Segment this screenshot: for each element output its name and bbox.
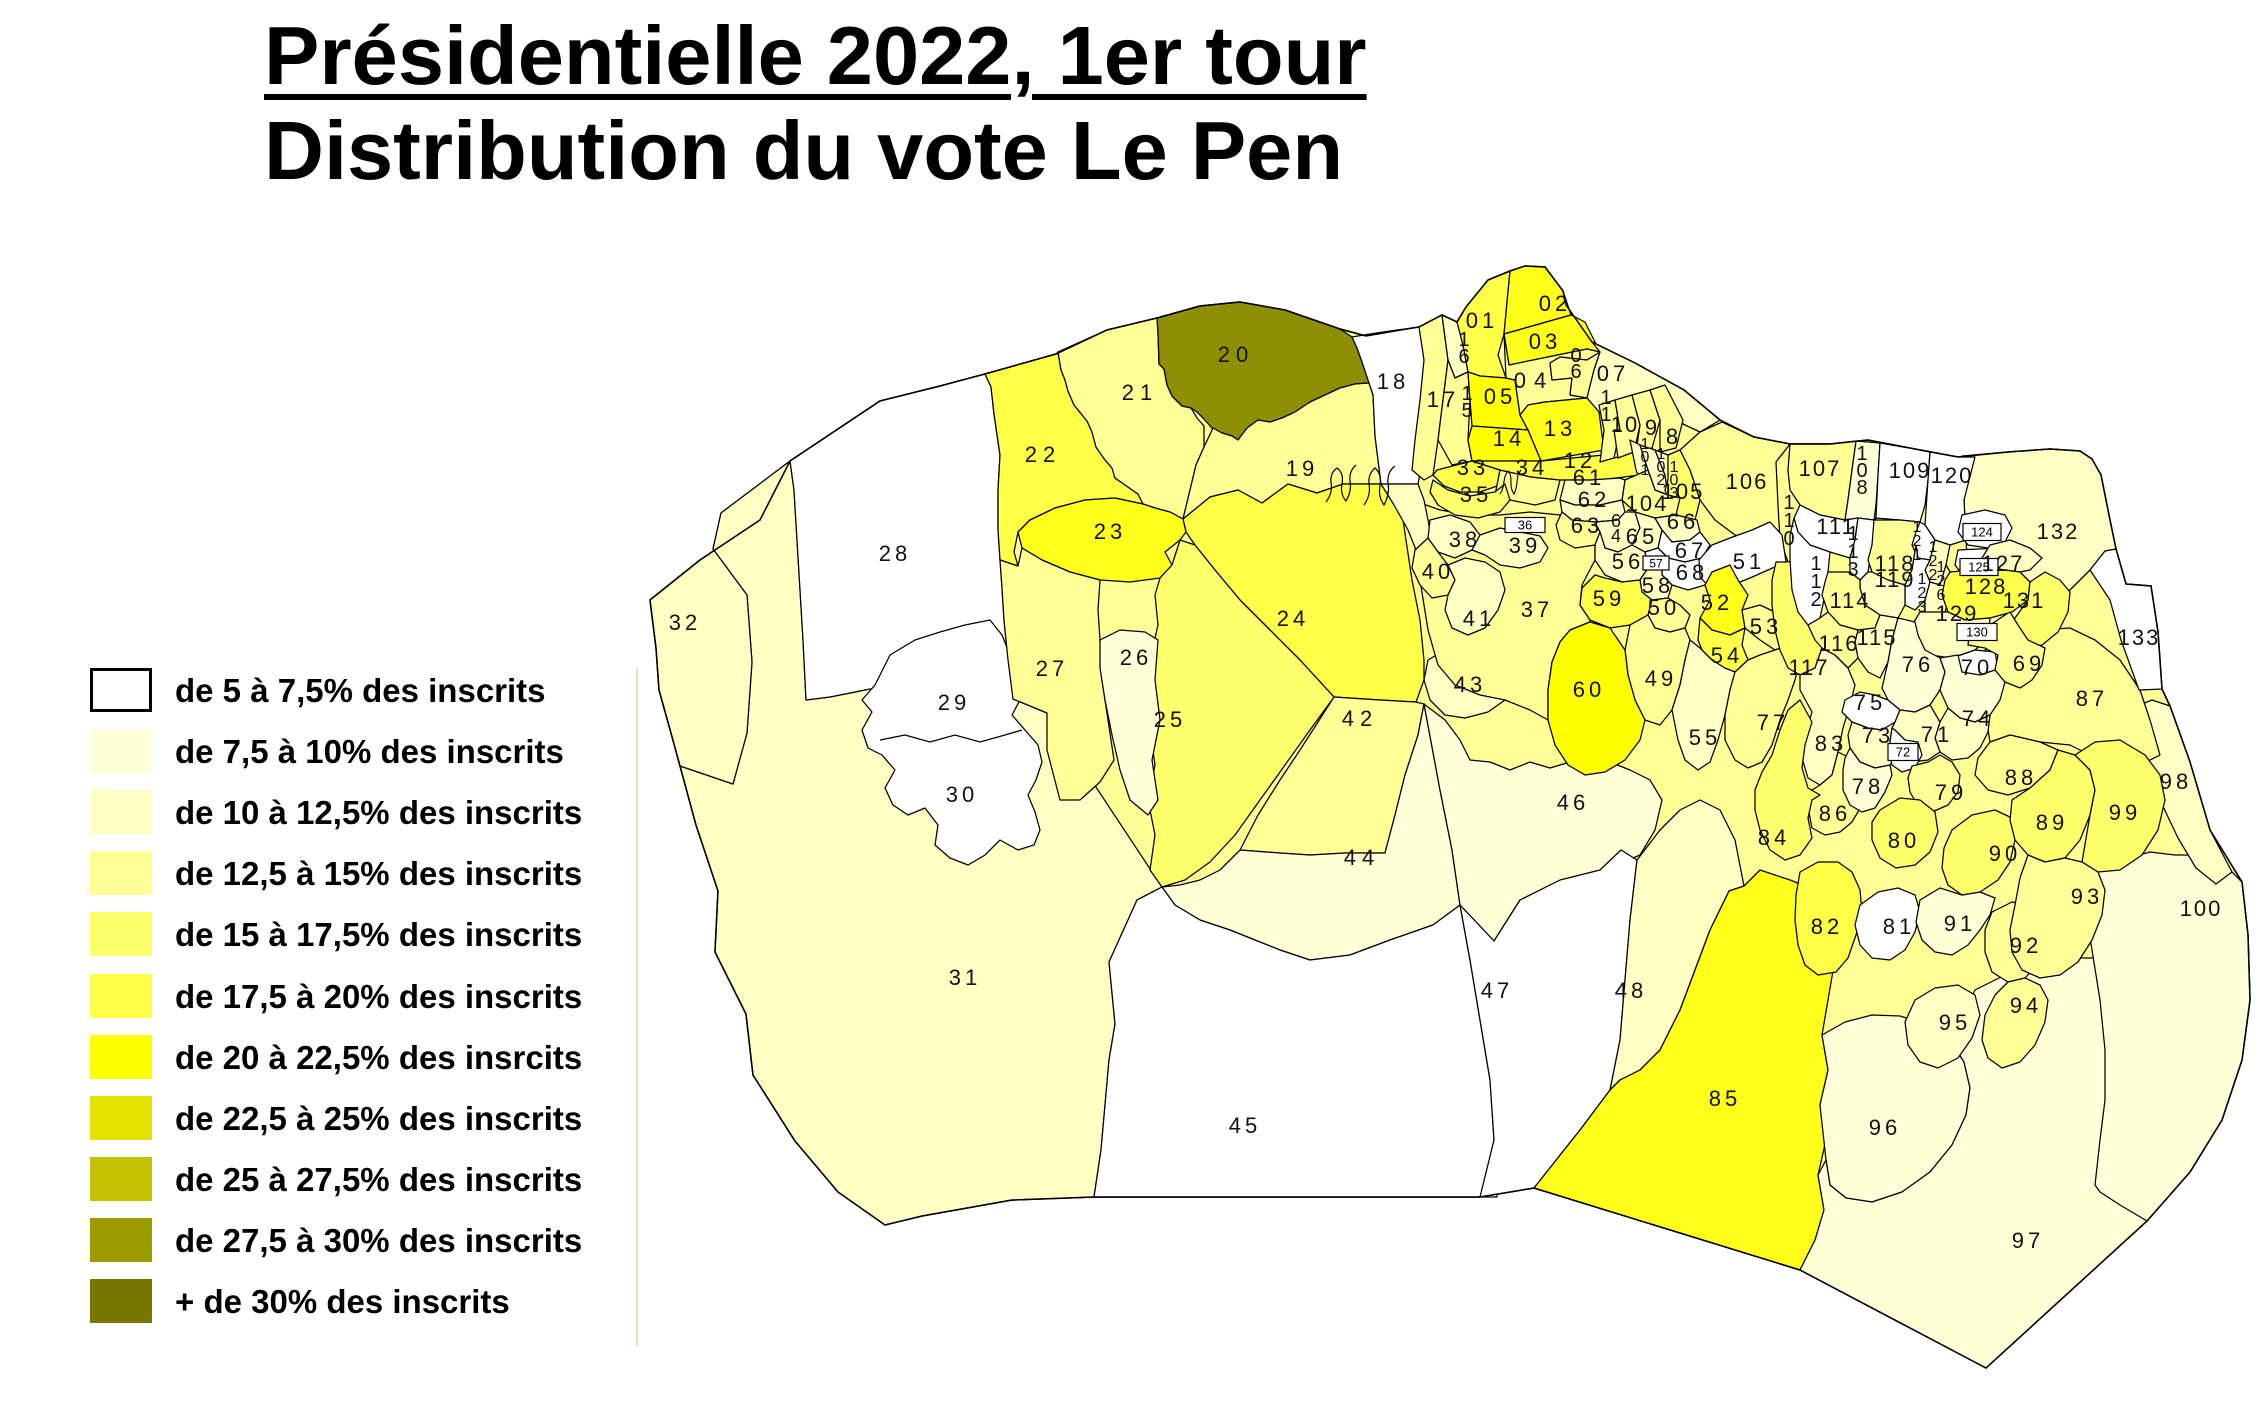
svg-text:83: 83 [1815,731,1847,756]
svg-text:70: 70 [1961,655,1993,680]
svg-text:53: 53 [1750,614,1782,639]
svg-text:88: 88 [2005,765,2037,790]
svg-text:98: 98 [2160,769,2192,794]
svg-text:04: 04 [1514,368,1554,393]
svg-text:35: 35 [1460,482,1492,507]
svg-text:86: 86 [1819,801,1851,826]
svg-text:06: 06 [1570,345,1581,383]
svg-text:119: 119 [1874,567,1915,592]
svg-text:60: 60 [1573,677,1605,702]
svg-text:40: 40 [1422,559,1454,584]
svg-text:23: 23 [1094,519,1126,544]
svg-text:41: 41 [1463,606,1495,631]
svg-text:07: 07 [1597,361,1629,386]
svg-text:121: 121 [1913,519,1922,564]
svg-text:45: 45 [1229,1113,1261,1138]
svg-text:18: 18 [1377,369,1409,394]
svg-text:19: 19 [1286,456,1318,481]
svg-text:38: 38 [1449,527,1481,552]
svg-text:124: 124 [1971,525,1993,540]
svg-text:39: 39 [1509,533,1541,558]
svg-text:46: 46 [1557,790,1589,815]
svg-text:01: 01 [1466,308,1498,333]
svg-text:58: 58 [1642,573,1674,598]
svg-text:113: 113 [1847,523,1858,581]
svg-text:26: 26 [1120,645,1152,670]
svg-text:52: 52 [1701,590,1733,615]
svg-text:51: 51 [1733,549,1765,574]
svg-text:79: 79 [1935,780,1967,805]
svg-text:85: 85 [1709,1086,1741,1111]
svg-text:57: 57 [1649,556,1663,570]
svg-text:71: 71 [1921,722,1953,747]
svg-text:99: 99 [2109,800,2141,825]
svg-text:64: 64 [1611,511,1621,546]
svg-text:109: 109 [1889,458,1932,483]
svg-text:14: 14 [1493,426,1525,451]
svg-text:89: 89 [2036,810,2068,835]
svg-text:05: 05 [1484,384,1516,409]
svg-text:131: 131 [2003,588,2046,613]
svg-text:78: 78 [1852,774,1884,799]
svg-text:44: 44 [1344,845,1380,870]
svg-text:115: 115 [1856,625,1897,650]
svg-text:37: 37 [1521,597,1553,622]
svg-text:47: 47 [1481,978,1513,1003]
svg-text:13: 13 [1544,416,1576,441]
svg-text:33: 33 [1457,455,1489,480]
svg-text:82: 82 [1811,914,1843,939]
svg-text:11: 11 [1600,387,1611,426]
svg-text:59: 59 [1593,586,1625,611]
svg-text:96: 96 [1869,1115,1901,1140]
svg-text:56: 56 [1612,549,1644,574]
svg-text:74: 74 [1962,706,1994,731]
svg-text:94: 94 [2010,993,2042,1018]
svg-text:116: 116 [1818,631,1859,656]
svg-text:91: 91 [1944,911,1976,936]
svg-text:63: 63 [1571,513,1603,538]
svg-text:36: 36 [1518,518,1532,533]
svg-text:123: 123 [1918,571,1927,616]
svg-text:76: 76 [1902,652,1934,677]
svg-text:130: 130 [1966,625,1988,640]
svg-text:43: 43 [1454,672,1486,697]
svg-text:21: 21 [1122,380,1158,405]
svg-text:114: 114 [1829,588,1870,613]
svg-text:103: 103 [1670,459,1679,502]
svg-text:105: 105 [1662,479,1705,504]
svg-text:72: 72 [1896,745,1910,760]
svg-text:102: 102 [1657,446,1666,489]
svg-text:133: 133 [2118,625,2161,650]
svg-text:32: 32 [669,610,701,635]
svg-text:50: 50 [1648,595,1680,620]
svg-text:87: 87 [2076,686,2108,711]
svg-text:27: 27 [1036,656,1068,681]
svg-text:42: 42 [1342,706,1378,731]
svg-text:100: 100 [2180,896,2223,921]
svg-text:62: 62 [1578,487,1610,512]
svg-text:108: 108 [1856,443,1867,499]
svg-text:16: 16 [1458,329,1469,368]
svg-text:69: 69 [2013,651,2045,676]
svg-text:8: 8 [1666,424,1680,449]
svg-text:129: 129 [1936,601,1979,626]
svg-text:65: 65 [1626,524,1658,549]
svg-text:12: 12 [1564,448,1596,473]
svg-text:132: 132 [2037,519,2080,544]
svg-text:73: 73 [1862,723,1894,748]
svg-text:10: 10 [1611,412,1639,437]
svg-text:55: 55 [1689,725,1721,750]
svg-text:28: 28 [879,541,911,566]
svg-text:15: 15 [1461,383,1472,422]
svg-text:128: 128 [1965,574,2008,599]
svg-text:66: 66 [1667,509,1699,534]
svg-text:112: 112 [1810,553,1821,611]
svg-text:03: 03 [1529,329,1561,354]
svg-text:80: 80 [1888,828,1920,853]
svg-text:93: 93 [2071,884,2103,909]
svg-text:106: 106 [1726,469,1769,494]
svg-text:117: 117 [1788,655,1829,680]
svg-text:02: 02 [1539,291,1571,316]
svg-text:97: 97 [2012,1228,2044,1253]
svg-text:17: 17 [1427,387,1459,412]
svg-text:127: 127 [1982,551,2025,576]
svg-text:107: 107 [1799,456,1842,481]
svg-text:20: 20 [1218,342,1254,367]
svg-text:81: 81 [1883,914,1915,939]
svg-text:22: 22 [1025,442,1061,467]
svg-text:75: 75 [1854,690,1886,715]
svg-text:48: 48 [1615,978,1647,1003]
svg-text:126: 126 [1937,559,1946,604]
svg-text:25: 25 [1154,707,1186,732]
svg-text:95: 95 [1939,1010,1971,1035]
svg-text:49: 49 [1645,666,1677,691]
svg-text:110: 110 [1783,492,1794,550]
svg-text:54: 54 [1711,643,1743,668]
svg-text:34: 34 [1516,455,1548,480]
svg-text:92: 92 [2010,933,2042,958]
svg-text:24: 24 [1277,606,1309,631]
svg-text:84: 84 [1758,825,1790,850]
svg-text:77: 77 [1757,710,1789,735]
svg-text:90: 90 [1989,841,2021,866]
svg-text:29: 29 [938,690,970,715]
svg-text:101: 101 [1641,436,1650,479]
svg-text:120: 120 [1931,463,1974,488]
svg-text:31: 31 [949,965,981,990]
svg-text:30: 30 [946,782,978,807]
svg-text:68: 68 [1676,560,1708,585]
